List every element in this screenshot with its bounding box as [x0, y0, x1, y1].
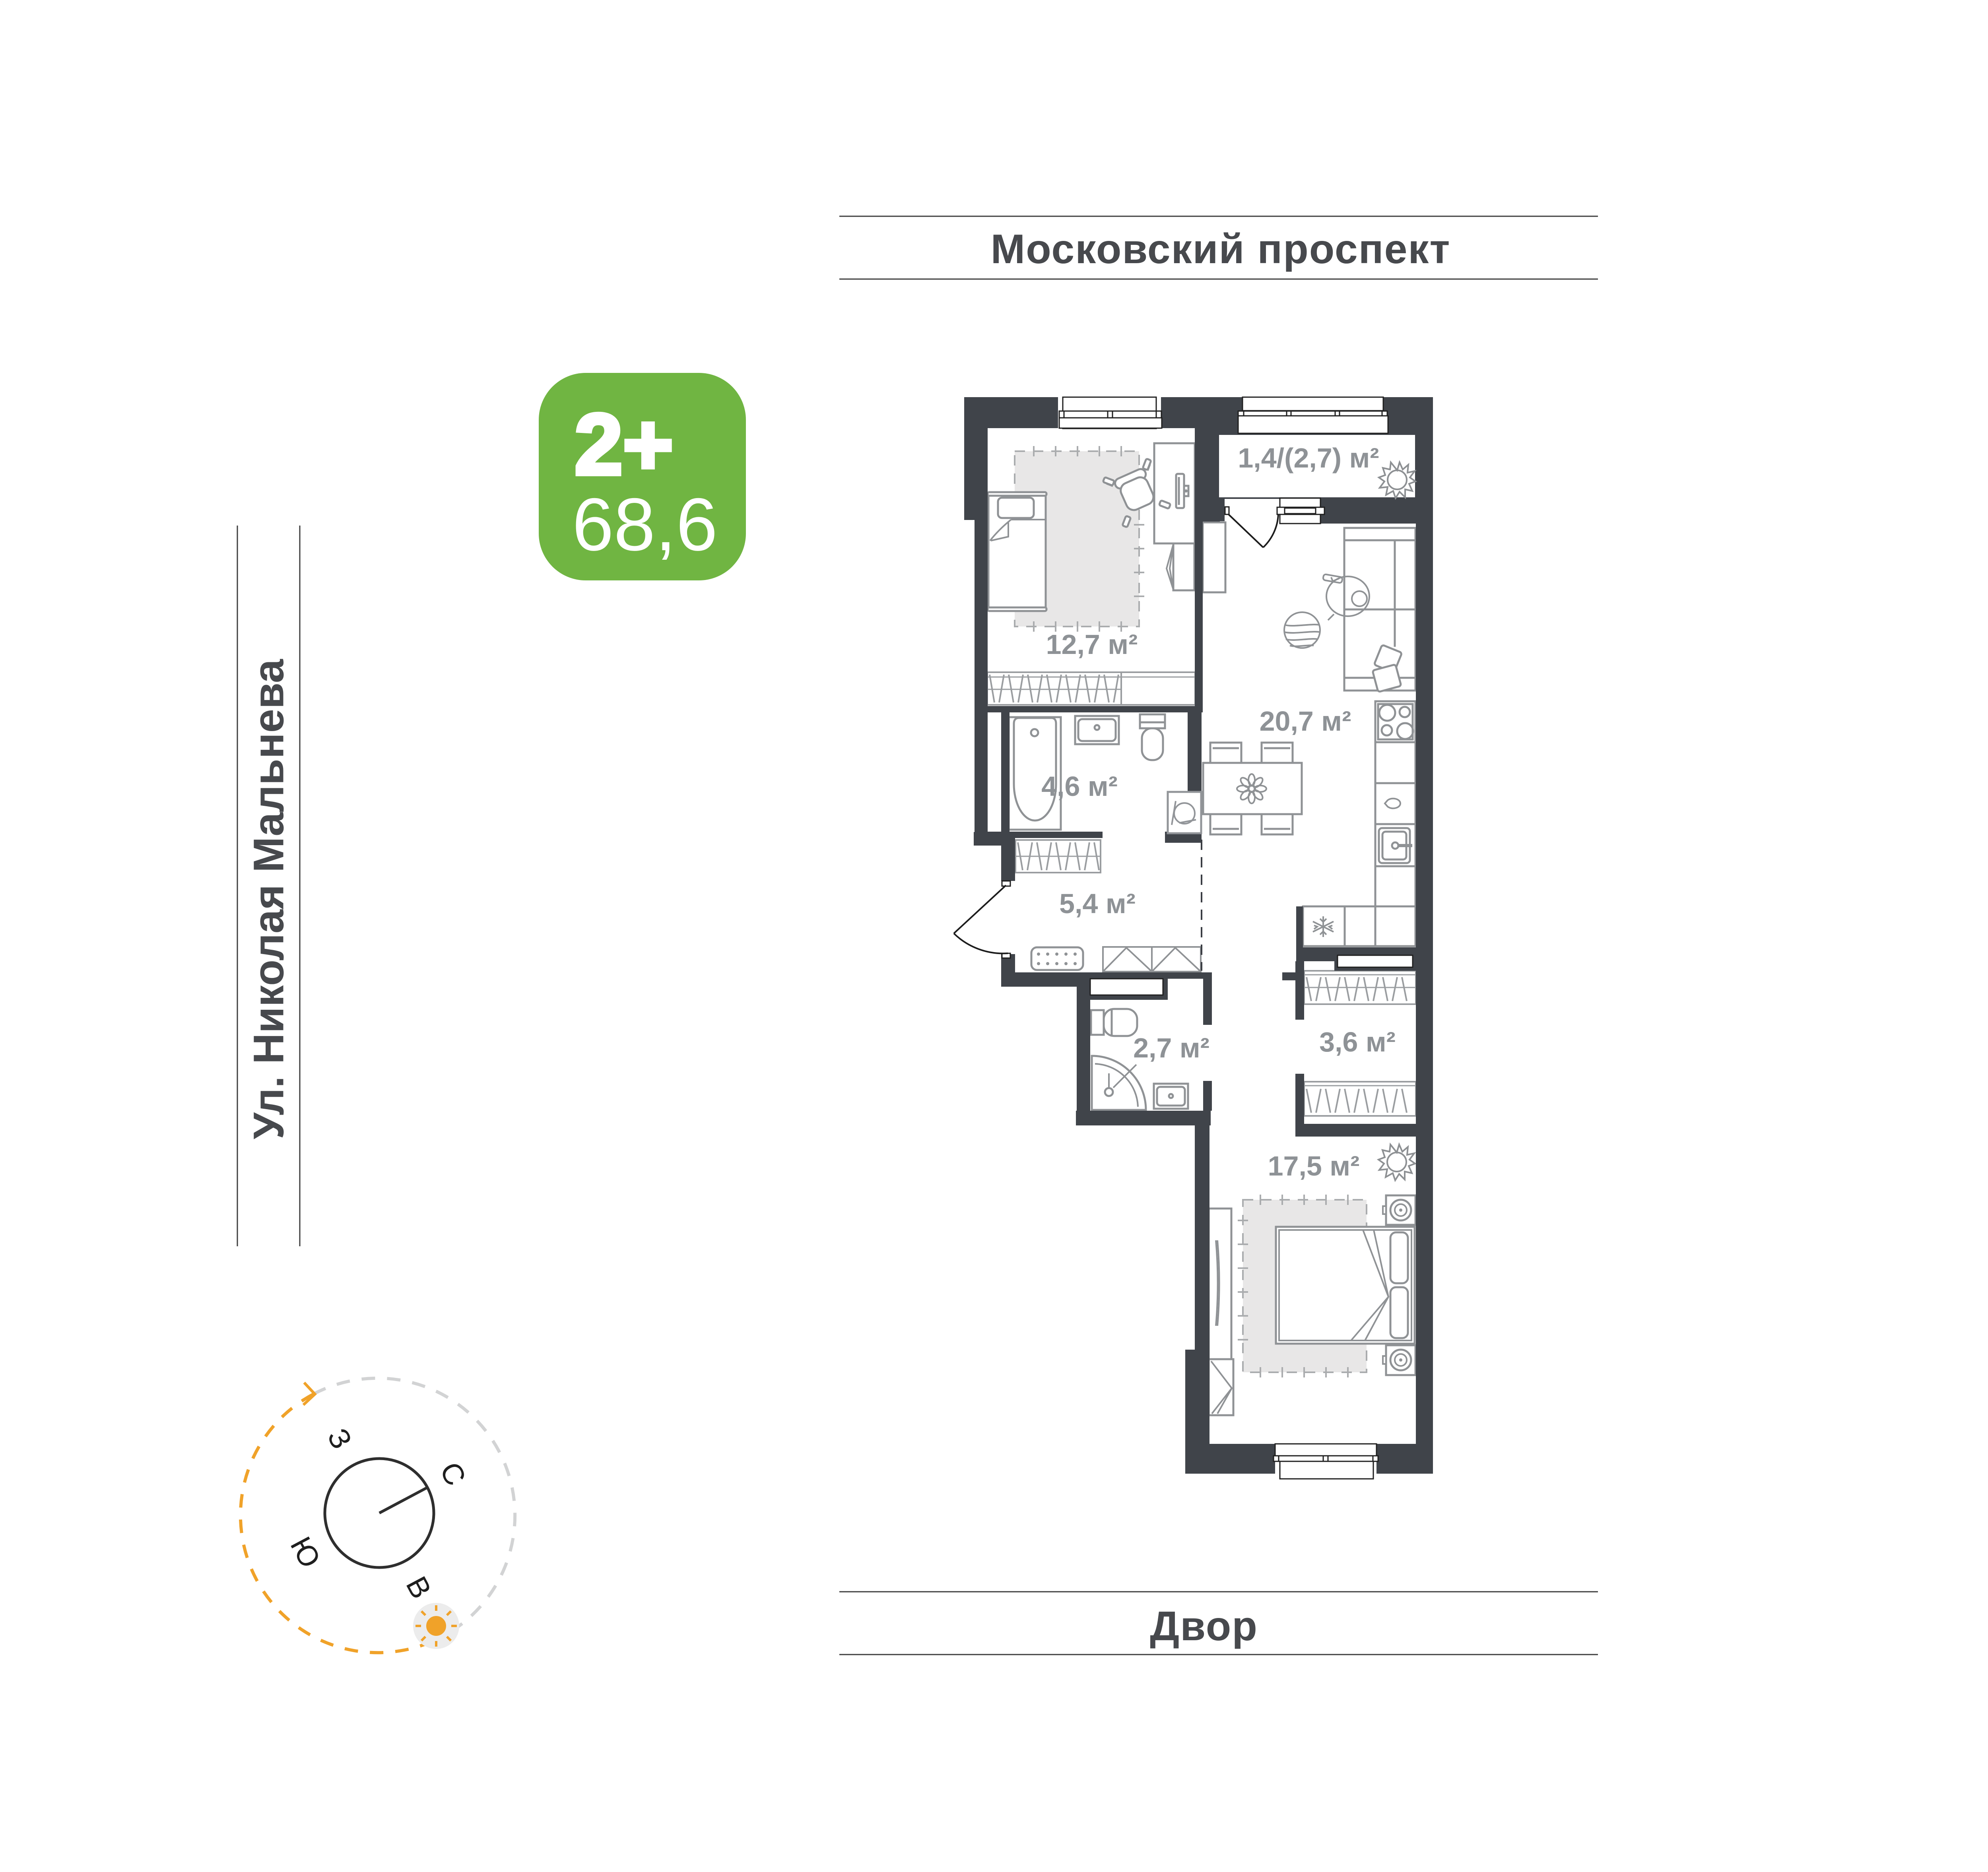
- svg-text:20,7 м²: 20,7 м²: [1260, 706, 1351, 737]
- svg-text:3,6 м²: 3,6 м²: [1319, 1026, 1396, 1057]
- svg-text:Ул. Николая Мальнева: Ул. Николая Мальнева: [245, 659, 293, 1139]
- svg-text:1,4/(2,7) м²: 1,4/(2,7) м²: [1238, 442, 1379, 473]
- svg-text:Двор: Двор: [1150, 1603, 1258, 1649]
- svg-text:4,6 м²: 4,6 м²: [1041, 771, 1118, 802]
- svg-text:2+: 2+: [575, 396, 674, 493]
- svg-text:68,6: 68,6: [572, 483, 718, 566]
- svg-text:17,5 м²: 17,5 м²: [1268, 1150, 1360, 1181]
- svg-text:2,7 м²: 2,7 м²: [1133, 1032, 1209, 1063]
- svg-text:5,4 м²: 5,4 м²: [1059, 888, 1136, 919]
- svg-text:Московский проспект: Московский проспект: [991, 226, 1451, 272]
- svg-text:12,7 м²: 12,7 м²: [1046, 629, 1138, 660]
